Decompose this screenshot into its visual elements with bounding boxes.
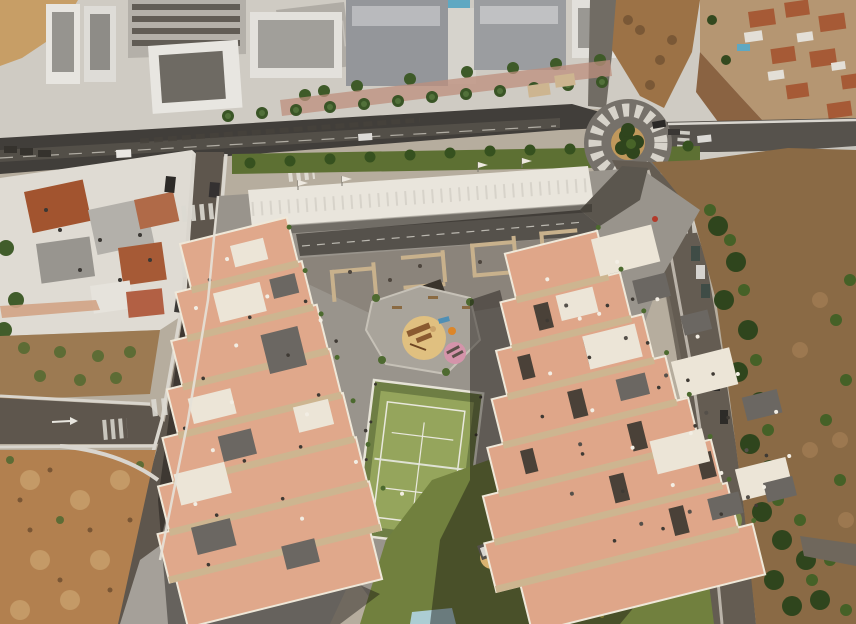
dirt-lot-specks (48, 468, 53, 473)
rooftop-pool (448, 0, 470, 8)
dirt-lot-light-patches (90, 550, 110, 570)
suv-dark-2 (209, 182, 220, 198)
hedge-palms (405, 150, 416, 161)
roundabout-palm-highlight (626, 139, 636, 149)
slope-weeds (54, 346, 66, 358)
dirt-lot-specks (108, 588, 113, 593)
parked-cars-ravine-road (691, 246, 700, 261)
palm-row-north-highlight (327, 104, 333, 110)
ravine-trees-large (740, 434, 760, 454)
street-trees-row (404, 73, 416, 85)
slope-weeds (92, 350, 104, 362)
road-arrow-line (52, 421, 70, 422)
suv-dark-1 (164, 176, 176, 193)
aerial-photo-canvas (0, 0, 856, 624)
construction-building-3-roof (159, 51, 226, 103)
white-car-avenue (358, 133, 372, 141)
kiosk-red (652, 216, 658, 222)
palm-row-north-highlight (599, 79, 605, 85)
construction-building-4-roof (258, 20, 334, 68)
gray-apartment-block-2-top (480, 6, 558, 24)
dirt-lot-light-patches (70, 490, 90, 510)
hedge-palms (365, 152, 376, 163)
hedge-palms (525, 145, 536, 156)
village-windows (98, 238, 102, 242)
roundabout-palms (621, 123, 635, 137)
dirt-lot-specks (58, 578, 63, 583)
dirt-lot-light-patches (110, 470, 130, 490)
village-windows (58, 228, 62, 232)
construction-building-1-roof (52, 12, 74, 72)
patio-furniture (348, 270, 352, 274)
orange-parasol (448, 327, 456, 335)
parked-cars-ravine-road (701, 284, 710, 298)
patio-furniture (478, 260, 482, 264)
ravine-trees-small (840, 374, 852, 386)
ravine-trees-small (794, 514, 806, 526)
ravine-trees-small (704, 204, 716, 216)
parked-car-white-ravine (696, 265, 705, 279)
ravine-trees-large (714, 290, 734, 310)
ravine-trees-small (762, 424, 774, 436)
ravine-trees-large (708, 216, 728, 236)
old-town-roofs (841, 73, 856, 89)
village-windows (148, 258, 152, 262)
ravine-dirt-patches (838, 512, 854, 528)
dirt-lot-light-patches (30, 550, 50, 570)
dirt-lot-specks (128, 518, 133, 523)
palm-row-north-highlight (463, 91, 469, 97)
palm-row-north-highlight (259, 110, 265, 116)
ravine-trees-small (738, 284, 750, 296)
patio-furniture (388, 278, 392, 282)
palm-row-north-highlight (293, 107, 299, 113)
plaza-benches (462, 306, 470, 309)
village-roof-terracotta-4 (126, 288, 165, 318)
village-windows (118, 278, 122, 282)
ravine-trees-large (764, 570, 784, 590)
ravine-dirt-patches (832, 432, 848, 448)
hedge-palms (485, 146, 496, 157)
ravine-slope-rocks (667, 35, 677, 45)
dirt-lot-light-patches (60, 590, 80, 610)
ravine-trees-small (724, 234, 736, 246)
ravine-slope-rocks (635, 25, 645, 35)
hedge-palms (445, 148, 456, 159)
ravine-trees-small (834, 474, 846, 486)
plaza-benches (428, 296, 438, 299)
dirt-lot-weeds (6, 456, 14, 464)
village-windows (138, 233, 142, 237)
ravine-slope-rocks (623, 15, 633, 25)
plaza-planters (372, 294, 380, 302)
construction-slab-stripes (132, 16, 240, 22)
dirt-lot-specks (28, 528, 33, 533)
street-trees-row (461, 66, 473, 78)
hedge-palms (325, 154, 336, 165)
parked-cars-left-edge (20, 148, 33, 155)
ravine-trees-large (782, 596, 802, 616)
village-windows (78, 268, 82, 272)
white-car-roundabout (697, 135, 712, 143)
hedge-palms (245, 158, 256, 169)
slope-weeds (124, 346, 136, 358)
dirt-lot-light-patches (10, 600, 30, 620)
slope-weeds (74, 374, 86, 386)
ravine-dirt-patches (812, 292, 828, 308)
old-town-trees (721, 55, 731, 65)
white-van (116, 149, 131, 158)
construction-slab-stripes (132, 28, 240, 34)
hedge-palms (565, 144, 576, 155)
ravine-dirt-patches (802, 442, 818, 458)
ravine-trees-small (820, 414, 832, 426)
ravine-trees-small (844, 274, 856, 286)
hedge-palms (683, 141, 694, 152)
palm-row-north-highlight (497, 88, 503, 94)
gray-apartment-block-1-top (352, 6, 440, 26)
old-town-pool (737, 44, 750, 51)
palm-row-north-highlight (225, 113, 231, 119)
patio-furniture (418, 264, 422, 268)
ravine-trees-large (772, 530, 792, 550)
dirt-lot-light-patches (20, 470, 40, 490)
parked-cars-left-edge (38, 150, 51, 157)
aerial-photo (0, 0, 856, 624)
slope-weeds (110, 372, 122, 384)
ravine-trees-small (750, 354, 762, 366)
ravine-trees-large (738, 320, 758, 340)
old-town-trees (707, 15, 717, 25)
slope-weeds (34, 370, 46, 382)
village-roof-gray-2 (36, 236, 95, 283)
plaza-planters (378, 356, 386, 364)
ravine-trees-large (726, 252, 746, 272)
ravine-slope-rocks (655, 55, 665, 65)
dirt-lot-weeds (56, 516, 64, 524)
dirt-lot-specks (18, 498, 23, 503)
play-structure-top (430, 326, 436, 332)
construction-slab-stripes (132, 4, 240, 10)
dirt-slope-below-village (0, 330, 160, 400)
hedge-palms (285, 156, 296, 167)
parked-cars-left-edge (4, 146, 17, 153)
construction-building-2-roof (90, 14, 110, 70)
ravine-trees-small (840, 604, 852, 616)
ravine-trees-small (806, 574, 818, 586)
palm-row-north-highlight (429, 94, 435, 100)
ravine-trees-small (830, 314, 842, 326)
plaza-benches (392, 306, 402, 309)
ravine-trees-large (810, 590, 830, 610)
dirt-lot-specks (88, 528, 93, 533)
ravine-slope-rocks (645, 80, 655, 90)
slope-weeds (18, 342, 30, 354)
village-roof-terracotta-3 (118, 242, 167, 286)
plaza-planters (442, 368, 450, 376)
palm-row-north-highlight (361, 101, 367, 107)
ravine-dirt-patches (792, 342, 808, 358)
palm-row-north-highlight (395, 98, 401, 104)
dark-car-roundabout-2 (668, 129, 680, 135)
village-windows (44, 208, 48, 212)
